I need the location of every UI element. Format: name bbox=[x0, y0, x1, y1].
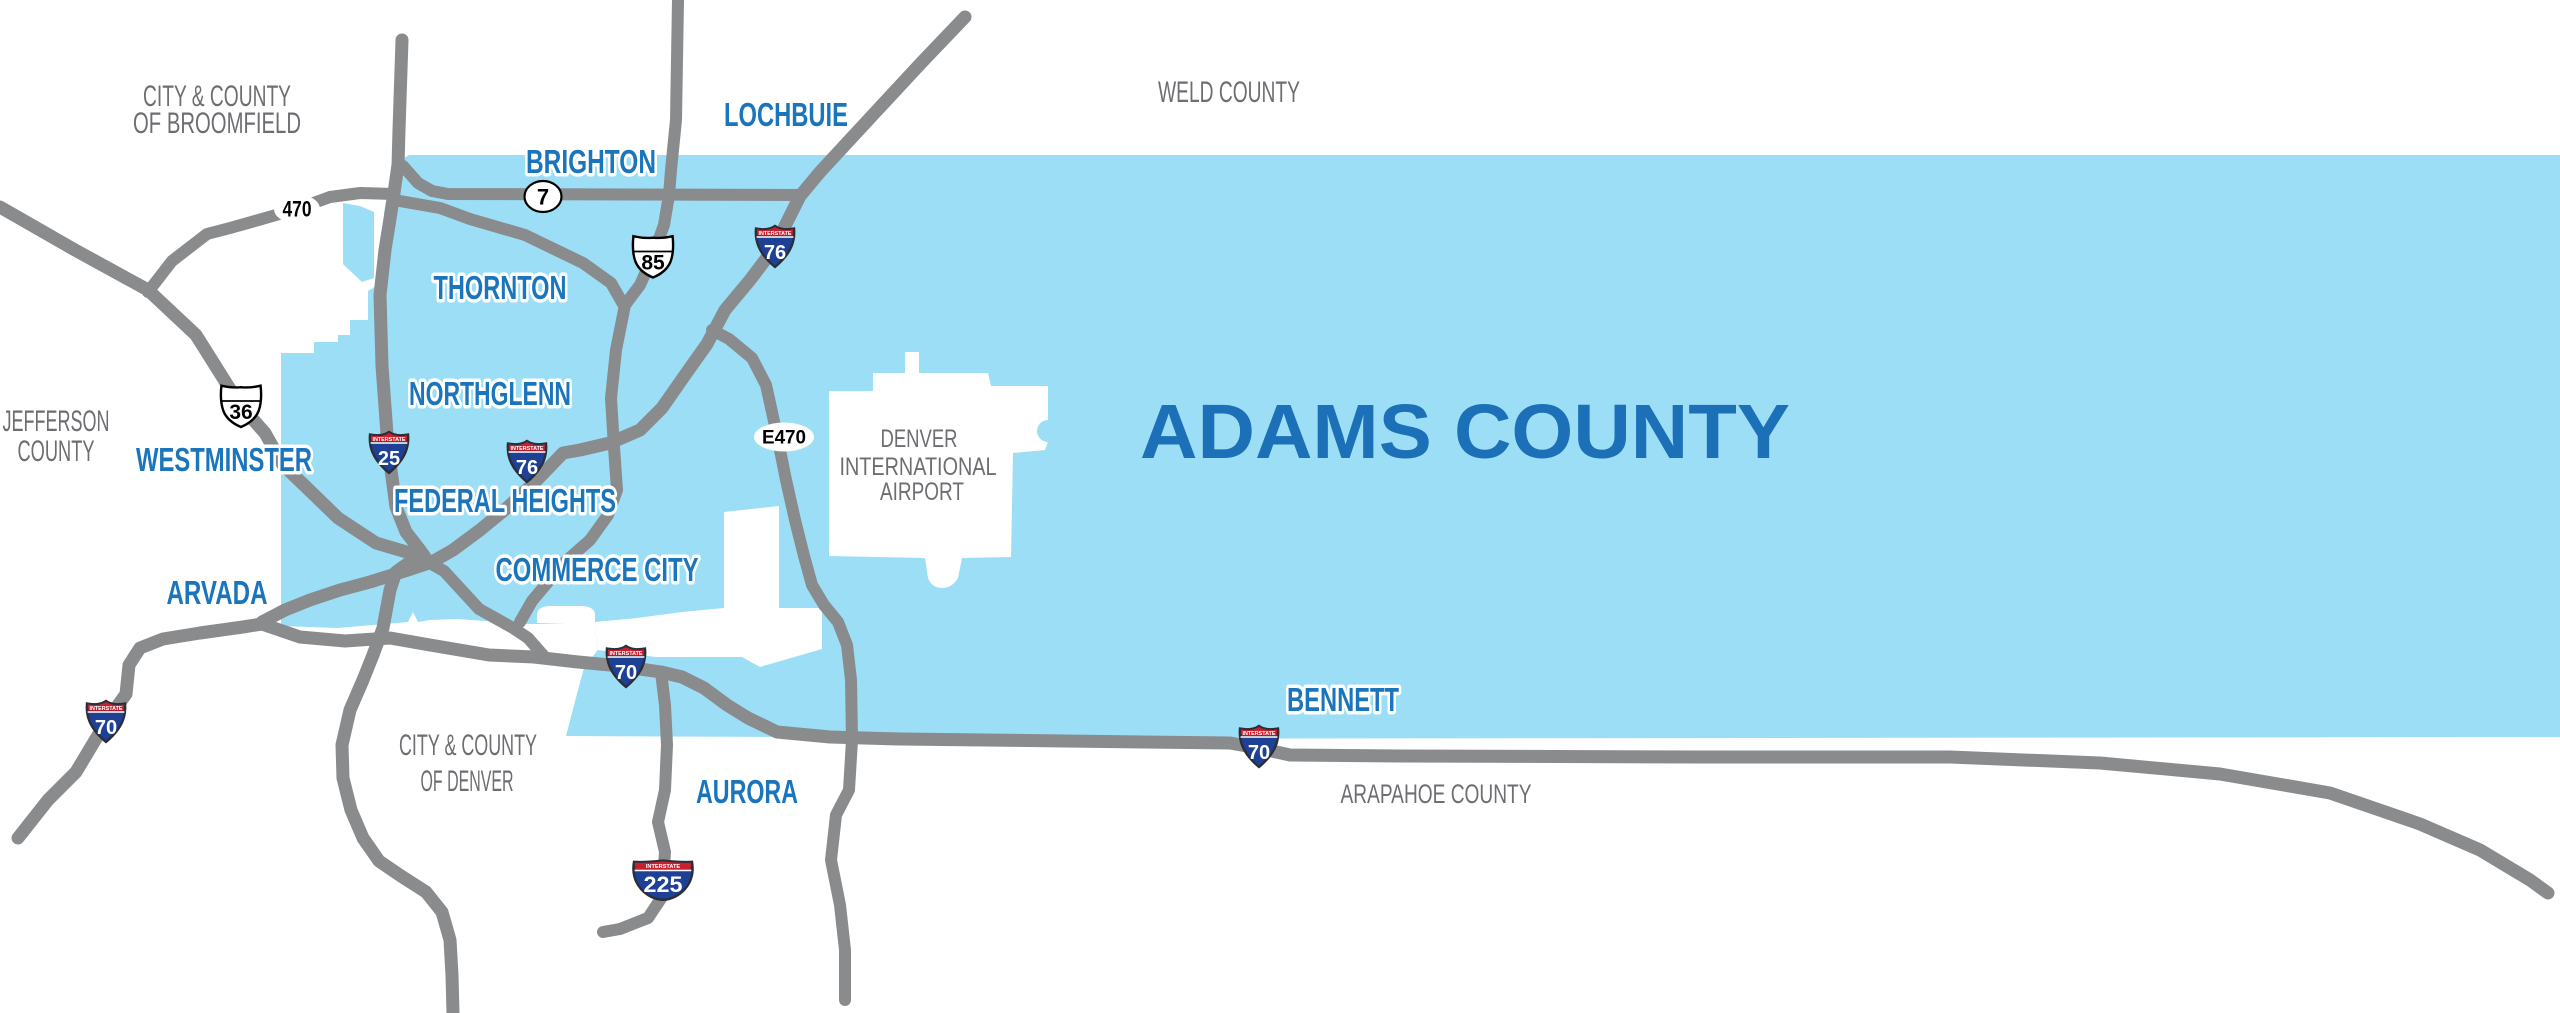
svg-text:BENNETT: BENNETT bbox=[1287, 681, 1399, 718]
svg-text:BRIGHTON: BRIGHTON bbox=[526, 143, 656, 180]
svg-text:225: 225 bbox=[644, 872, 683, 897]
svg-text:85: 85 bbox=[641, 252, 665, 275]
svg-text:470: 470 bbox=[283, 197, 312, 222]
svg-text:25: 25 bbox=[378, 448, 400, 470]
svg-text:70: 70 bbox=[615, 662, 637, 684]
svg-text:7: 7 bbox=[537, 185, 549, 210]
svg-text:AURORA: AURORA bbox=[696, 773, 798, 810]
svg-text:E470: E470 bbox=[762, 428, 806, 449]
svg-text:CITY & COUNTY: CITY & COUNTY bbox=[399, 729, 537, 762]
svg-text:JEFFERSON: JEFFERSON bbox=[3, 405, 110, 438]
svg-text:OF BROOMFIELD: OF BROOMFIELD bbox=[133, 107, 301, 140]
svg-text:INTERNATIONAL: INTERNATIONAL bbox=[840, 453, 997, 481]
svg-text:WELD COUNTY: WELD COUNTY bbox=[1158, 76, 1300, 109]
svg-text:76: 76 bbox=[516, 457, 538, 479]
svg-text:70: 70 bbox=[95, 717, 117, 739]
svg-text:NORTHGLENN: NORTHGLENN bbox=[409, 375, 571, 412]
svg-text:COUNTY: COUNTY bbox=[18, 435, 95, 468]
svg-text:COMMERCE CITY: COMMERCE CITY bbox=[496, 551, 699, 588]
svg-text:AIRPORT: AIRPORT bbox=[880, 478, 964, 506]
svg-text:ARAPAHOE COUNTY: ARAPAHOE COUNTY bbox=[1341, 779, 1532, 809]
svg-text:ADAMS COUNTY: ADAMS COUNTY bbox=[1140, 389, 1790, 475]
svg-text:36: 36 bbox=[229, 401, 252, 424]
svg-text:DENVER: DENVER bbox=[881, 425, 958, 453]
svg-text:WESTMINSTER: WESTMINSTER bbox=[136, 441, 312, 478]
svg-text:FEDERAL HEIGHTS: FEDERAL HEIGHTS bbox=[394, 482, 616, 519]
svg-text:OF DENVER: OF DENVER bbox=[421, 765, 514, 798]
svg-text:THORNTON: THORNTON bbox=[434, 269, 567, 306]
svg-text:ARVADA: ARVADA bbox=[167, 574, 268, 611]
svg-text:LOCHBUIE: LOCHBUIE bbox=[724, 96, 848, 133]
svg-text:70: 70 bbox=[1248, 742, 1270, 764]
svg-text:76: 76 bbox=[764, 242, 786, 264]
